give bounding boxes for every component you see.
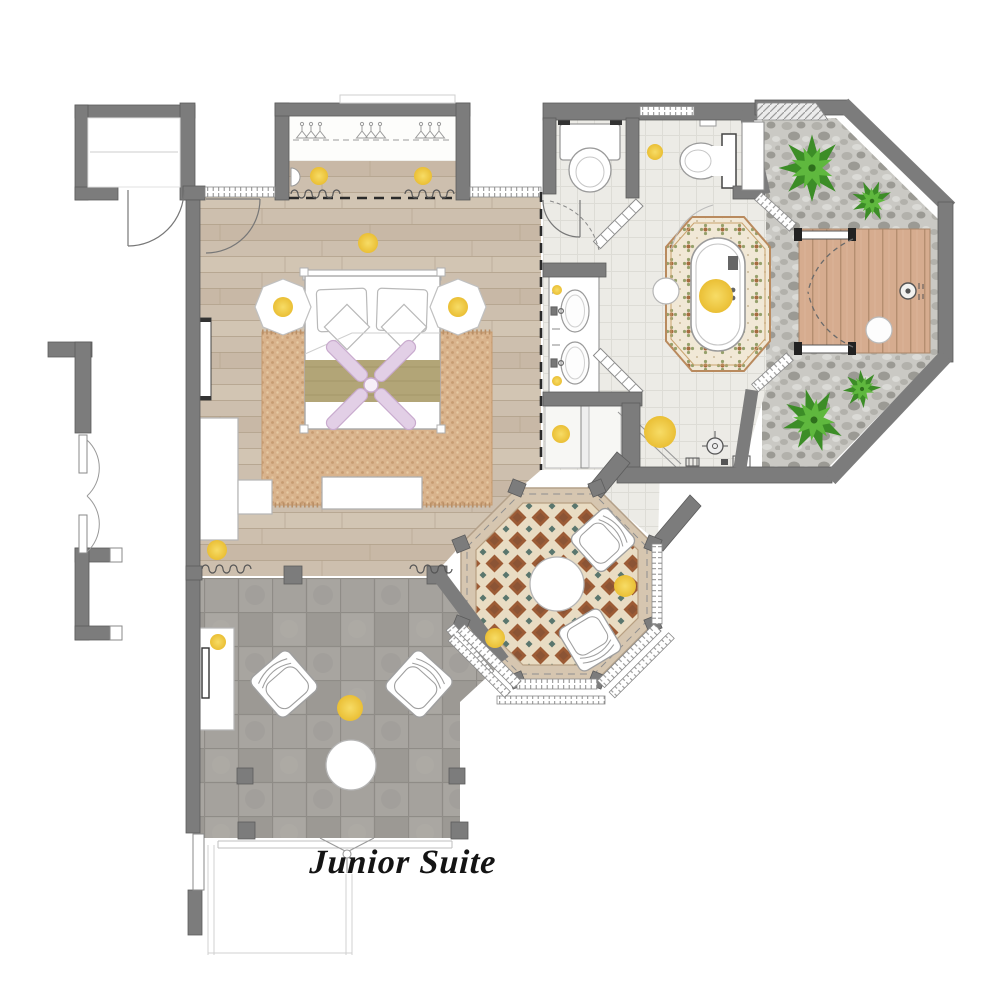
storage-room-shelf (88, 118, 180, 187)
corridor-doors (79, 435, 99, 553)
closet-floor (289, 116, 456, 199)
terrace-table (326, 740, 376, 790)
pergola-hatch (757, 103, 828, 120)
floor-plan-canvas (0, 0, 1000, 982)
bed-bench (322, 477, 422, 509)
bath-side-table (653, 278, 679, 304)
closet-ledge (340, 95, 455, 103)
deck-stool (866, 317, 892, 343)
pavilion-table (530, 557, 584, 611)
plan-title: Junior Suite (257, 844, 549, 882)
floor-plan: Junior Suite (0, 0, 1000, 982)
bed (300, 268, 445, 433)
tv-unit (200, 318, 211, 400)
